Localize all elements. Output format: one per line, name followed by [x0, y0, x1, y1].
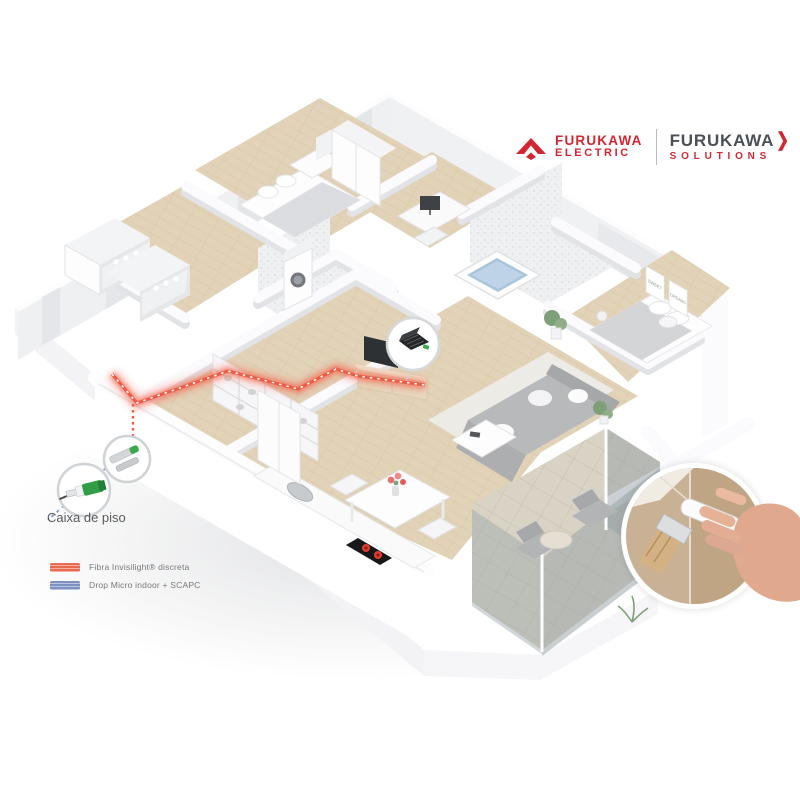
furukawa-solutions-line1: FURUKAWA [670, 132, 775, 151]
legend-swatch-drop-micro [50, 581, 80, 590]
solutions-chevron-icon: ❯ [776, 131, 789, 152]
legend-item-drop-micro: Drop Micro indoor + SCAPC [50, 580, 201, 590]
bedside-lamp [597, 311, 607, 321]
legend-label-drop-micro: Drop Micro indoor + SCAPC [89, 580, 201, 590]
logo-divider [656, 129, 657, 165]
legend-swatch-invisilight [50, 563, 80, 572]
furukawa-electric-logo: FURUKAWA ELECTRIC [514, 133, 643, 161]
furukawa-mark-icon [514, 133, 548, 161]
balcony-table [540, 531, 572, 549]
furukawa-solutions-logo: FURUKAWA ❯ SOLUTIONS [670, 132, 789, 163]
legend-label-invisilight: Fibra Invisilight® discreta [89, 562, 189, 572]
connector-inset-sc-apc [57, 464, 110, 516]
page: SWEET DREAMS [0, 0, 800, 800]
furukawa-electric-line1: FURUKAWA [555, 134, 643, 148]
connector-inset-drop-cable [104, 436, 150, 482]
floorplan-illustration: SWEET DREAMS [0, 0, 800, 800]
legend: Fibra Invisilight® discreta Drop Micro i… [50, 562, 201, 590]
furukawa-electric-line2: ELECTRIC [555, 148, 643, 160]
computer-monitor [420, 196, 440, 210]
paintbrush-inset [618, 460, 800, 612]
brand-logos: FURUKAWA ELECTRIC FURUKAWA ❯ SOLUTIONS [514, 129, 789, 165]
furukawa-solutions-line2: SOLUTIONS [670, 151, 789, 162]
floor-box-label: Caixa de piso [47, 510, 126, 525]
legend-item-invisilight: Fibra Invisilight® discreta [50, 562, 201, 572]
